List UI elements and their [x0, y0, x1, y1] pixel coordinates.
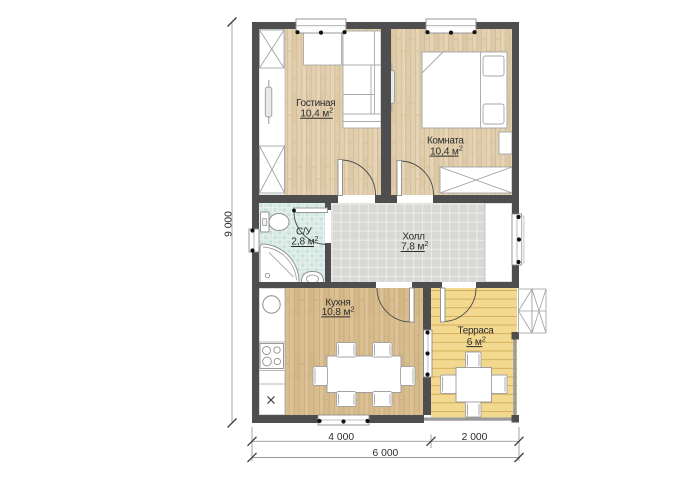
svg-text:7,8 м2: 7,8 м2 [401, 239, 428, 253]
svg-text:10,8 м2: 10,8 м2 [322, 304, 355, 318]
svg-text:4 000: 4 000 [328, 432, 354, 443]
svg-text:6 000: 6 000 [373, 448, 399, 459]
svg-text:10,4 м2: 10,4 м2 [430, 144, 463, 158]
svg-text:2 000: 2 000 [462, 432, 488, 443]
svg-text:10,4 м2: 10,4 м2 [300, 106, 333, 120]
svg-text:2,8 м2: 2,8 м2 [291, 234, 318, 248]
svg-text:Терраса: Терраса [458, 326, 495, 337]
svg-text:9 000: 9 000 [224, 211, 235, 237]
